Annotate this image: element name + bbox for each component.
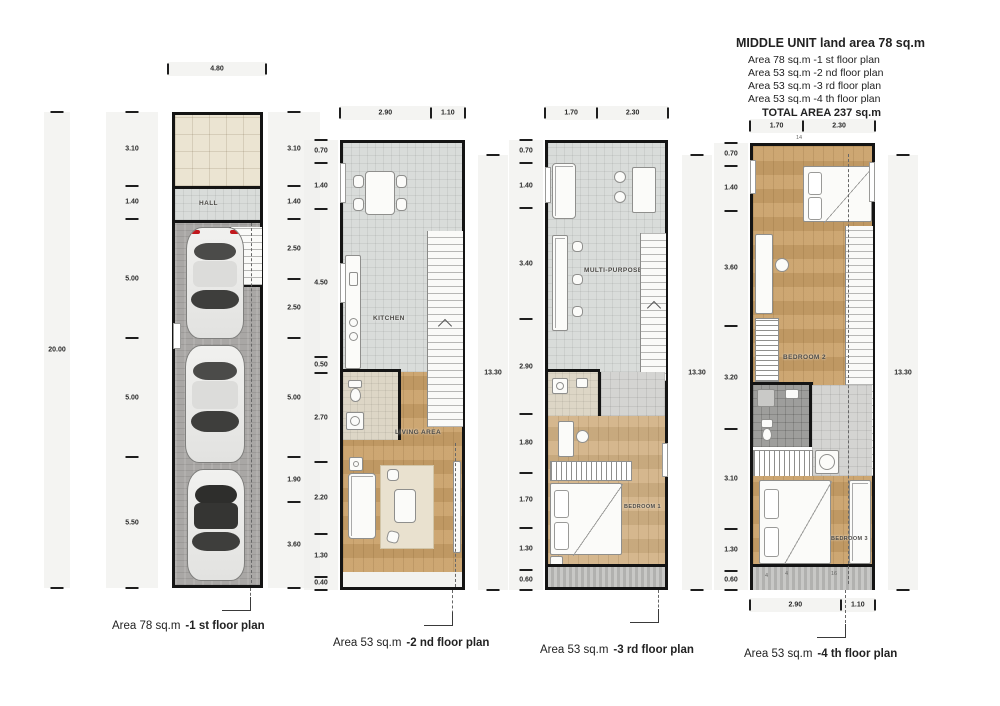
plan2-caption: Area 53 sq.m-2 nd floor plan [333,637,489,649]
rear-threshold [343,572,462,587]
dim-tick [596,108,598,119]
dim-tick [288,278,301,280]
bedroom3-label: BEDROOM 3 [831,536,868,542]
dim-tick [691,589,704,591]
desk-chair [614,191,626,203]
plan1-overall-dim: 20.00 [44,112,70,588]
dim-label: 13.30 [894,369,912,376]
dim-tick [520,162,533,164]
washer-drum [556,382,564,390]
balcony [548,567,665,587]
dim-label: 2.90 [519,363,533,370]
washing-machine [346,412,364,430]
stair-direction-icon [438,319,452,333]
pillow [554,522,569,550]
bedroom1-label: BEDROOM 1 [624,504,661,510]
plan4-caption-label: -4 th floor plan [817,648,897,660]
dim-tick [315,461,328,463]
dim-tick [315,208,328,210]
plan4-caption: Area 53 sq.m-4 th floor plan [744,648,897,660]
header-line-4: Area 53 sq.m -4 th floor plan [748,93,881,105]
front-terrace [175,115,260,186]
pillow [554,490,569,518]
plan4-bottom-dim-bar: 2.901.10 [750,598,875,612]
dim-label: 0.70 [519,148,533,155]
header-line-3: Area 53 sq.m -3 rd floor plan [748,80,881,92]
lamp-icon [353,461,359,467]
plan2-caption-label: -2 nd floor plan [406,637,489,649]
plan1-top-dim-bar: 4.80 [168,62,266,76]
dim-label: 2.30 [832,123,846,130]
dim-tick [315,576,328,578]
dim-tick [126,587,139,589]
sofa-cushions [555,166,573,216]
plan1-caption-label: -1 st floor plan [185,620,264,632]
dim-tick [725,210,738,212]
dim-tick [430,108,432,119]
desk-chair [775,258,789,272]
dim-tick [288,587,301,589]
car-windshield [192,532,239,552]
pillow [808,197,822,220]
window [750,160,756,194]
dim-tick [126,185,139,187]
dining-chair [353,175,364,188]
dim-tick [464,108,466,119]
floor-plan-1: HALL [172,112,263,588]
bathroom [343,372,398,440]
pillow [808,172,822,195]
stool [572,274,583,285]
toilet [762,428,772,441]
dim-label: 1.90 [287,476,301,483]
dining-chair [396,175,407,188]
counter-bar [552,235,568,331]
dim-label: 2.30 [626,110,640,117]
dim-label: 1.40 [724,185,738,192]
dim-label: 13.30 [688,369,706,376]
dim-label: 1.10 [851,602,865,609]
sink [785,389,799,399]
plan4-top-dim-bar: 1.702.30 [750,119,875,133]
hall-area: HALL [175,189,260,220]
dim-label: 1.70 [564,110,578,117]
plan1-caption-area: Area 78 sq.m [112,620,180,632]
dim-tick [725,428,738,430]
bookshelf [550,461,632,481]
plan4-left-dims: 0.701.403.603.203.101.300.60 [714,143,748,590]
car-roof [192,381,238,409]
dim-tick [725,528,738,530]
dim-label: 3.60 [724,265,738,272]
floor-plan-4: BEDROOM 2 BEDROOM 3 4 4 [750,143,875,590]
dim-tick [544,108,546,119]
balcony-tag: 4 [785,571,788,577]
dim-tick [315,589,328,591]
coffee-table [394,489,416,523]
dim-tick [520,413,533,415]
dim-label: 1.30 [314,552,328,559]
window [545,167,551,203]
bathroom-dark [753,385,809,447]
dim-tick [874,121,876,132]
cooktop-burner [349,332,358,341]
pillow [764,489,779,519]
dim-label: 1.10 [441,110,455,117]
daybed-sofa [552,163,576,219]
dim-tick [520,207,533,209]
dim-tick [520,569,533,571]
plan3-section-hook [630,609,659,623]
dim-label: 4.80 [210,66,224,73]
dim-label: 3.10 [287,145,301,152]
plan3-caption-area: Area 53 sq.m [540,644,608,656]
plan2-left-dims: 0.701.404.500.502.702.201.300.40 [304,140,338,590]
wardrobe [755,318,779,382]
dim-tick [288,456,301,458]
dim-label: 2.70 [314,414,328,421]
plan4-section-hook [817,624,846,638]
side-gate [173,323,181,349]
dim-tick [288,185,301,187]
dim-tick [520,139,533,141]
hall-label: HALL [199,200,218,207]
plan2-right-overall: 13.30 [478,155,508,590]
blanket-fold [573,484,623,556]
dim-tick [749,600,751,611]
car-windshield [191,290,238,310]
dim-tick [487,589,500,591]
dim-label: 1.40 [125,199,139,206]
dim-label: 0.40 [314,580,328,587]
cabinet-shelves [852,483,868,561]
dim-tick [749,121,751,132]
plan1-caption: Area 78 sq.m-1 st floor plan [112,620,265,632]
dim-label: 4.50 [314,279,328,286]
shower [757,389,775,407]
bedroom1-area: BEDROOM 1 [548,416,665,567]
dim-tick [487,154,500,156]
dim-label: 3.60 [287,542,301,549]
dim-label: 1.70 [770,123,784,130]
side-table [349,457,363,471]
staircase [427,231,463,427]
dim-label: 20.00 [48,347,66,354]
dim-tick [339,108,341,119]
dim-tick [315,139,328,141]
toilet-tank [348,380,362,388]
dim-label: 0.60 [724,577,738,584]
dim-tick [126,111,139,113]
dim-label: 1.80 [519,440,533,447]
dim-label: 1.40 [519,182,533,189]
plan4-caption-area: Area 53 sq.m [744,648,812,660]
dim-label: 13.30 [484,369,502,376]
dim-label: 5.00 [125,394,139,401]
plan3-caption-label: -3 rd floor plan [613,644,694,656]
car-3 [187,469,245,581]
balcony-tag: 16 [831,571,837,577]
dim-tick [725,325,738,327]
dim-tick [725,142,738,144]
dim-label: 1.30 [519,546,533,553]
dim-label: 2.50 [287,245,301,252]
sink [576,378,588,388]
washer-drum [350,416,360,426]
dim-tick [897,589,910,591]
side-table [815,450,839,474]
dim-tick [520,527,533,529]
dim-label: 2.50 [287,305,301,312]
balcony: 4 4 16 [753,567,872,590]
stool [572,241,583,252]
dim-tick [315,162,328,164]
header-line-2: Area 53 sq.m -2 nd floor plan [748,67,883,79]
dim-tick [51,587,64,589]
sofa [348,473,376,539]
dim-label: 3.20 [724,374,738,381]
header-total: TOTAL AREA 237 sq.m [762,107,881,119]
plan2-centerline [455,443,456,587]
window [662,443,668,477]
kitchen-sink [349,272,358,286]
kitchen-counter [345,255,361,369]
bedroom2-label: BEDROOM 2 [783,354,826,361]
dim-tick [725,570,738,572]
dim-tick [897,154,910,156]
dim-tick [667,108,669,119]
dim-tick [691,154,704,156]
lot-centerline [251,223,252,583]
dim-label: 1.40 [314,182,328,189]
dim-tick [725,589,738,591]
dim-label: 2.90 [789,602,803,609]
cooktop-burner [349,318,358,327]
dim-label: 1.40 [287,199,301,206]
lamp-icon [819,454,835,470]
dim-label: 0.50 [314,362,328,369]
dim-tick [288,337,301,339]
wardrobe-2 [753,450,813,478]
plan1-section-hook [222,597,251,611]
multi-purpose-label: MULTI-PURPOSE [584,267,643,274]
plan3-left-dims: 0.701.403.402.901.801.701.300.60 [509,140,543,590]
dim-tick [874,600,876,611]
bed-3 [759,480,831,564]
dim-label: 0.60 [519,577,533,584]
dim-tick [126,456,139,458]
dim-tick [265,64,267,75]
tail-light-icon [191,230,200,234]
plan3-right-overall: 13.30 [682,155,712,590]
stair-landing [601,372,665,416]
car-windshield [191,411,240,432]
dim-label: 0.70 [724,151,738,158]
plan2-section-hook [424,612,453,626]
bathroom [548,372,598,416]
tail-light-icon [230,230,239,234]
dim-label: 0.70 [314,148,328,155]
dim-label: 2.20 [314,495,328,502]
dim-tick [315,372,328,374]
dim-label: 2.90 [379,110,393,117]
dim-label: 3.40 [519,260,533,267]
window [340,163,346,203]
balcony-tag: 4 [765,573,768,579]
plan4-top-tag: 14 [796,135,802,141]
car-2 [185,345,245,463]
dim-tick [51,111,64,113]
pillow [764,527,779,557]
stool [572,306,583,317]
dim-label: 3.10 [125,145,139,152]
chair [576,430,589,443]
plan2-top-dim-bar: 2.901.10 [340,106,465,120]
dim-tick [802,121,804,132]
dining-table [365,171,395,215]
plan1-left-dims: 3.101.405.005.005.50 [106,112,158,588]
dim-tick [288,111,301,113]
plan3-caption: Area 53 sq.m-3 rd floor plan [540,644,694,656]
desk-chair [614,171,626,183]
dining-chair [396,198,407,211]
carport-area [175,223,260,585]
kitchen-label: KITCHEN [373,315,405,322]
staircase [640,233,666,381]
dim-tick [315,533,328,535]
toilet-tank [761,419,773,428]
car-roof [194,503,239,529]
dim-tick [520,472,533,474]
counter-shelves [555,238,565,328]
blanket-fold [784,481,832,565]
dim-tick [288,218,301,220]
tall-cabinet [849,480,871,564]
car-rear-glass [194,243,237,260]
dim-tick [126,218,139,220]
dim-tick [520,589,533,591]
dining-chair [353,198,364,211]
toilet [350,388,361,402]
stair-direction-icon [647,301,661,315]
dim-label: 1.30 [724,546,738,553]
dim-label: 3.10 [724,476,738,483]
sheet-title: MIDDLE UNIT land area 78 sq.m [736,36,925,50]
plan2-caption-area: Area 53 sq.m [333,637,401,649]
plan3-top-dim-bar: 1.702.30 [545,106,668,120]
pouf [387,469,399,481]
header-line-1: Area 78 sq.m -1 st floor plan [748,54,880,66]
car-rear-glass [193,362,237,379]
plan4-right-overall: 13.30 [888,155,918,590]
dresser [558,421,574,457]
sofa-cushions [351,476,373,536]
dim-tick [520,318,533,320]
floorplan-sheet: MIDDLE UNIT land area 78 sq.m Area 78 sq… [0,0,1000,706]
dim-tick [126,337,139,339]
desk [755,234,773,314]
car-1 [186,227,244,339]
dim-tick [725,165,738,167]
bed-2 [803,166,872,222]
dim-label: 5.50 [125,519,139,526]
dim-tick [288,501,301,503]
washing-machine [552,378,568,394]
dim-label: 5.00 [287,394,301,401]
work-desk [632,167,656,213]
floor-plan-2: KITCHEN LIVING AREA [340,140,465,590]
floor-plan-3: MULTI-PURPOSE BEDROOM 1 [545,140,668,590]
bed-1 [550,483,622,555]
window [340,263,346,303]
dim-tick [840,600,842,611]
plan4-centerline [848,154,849,584]
dim-tick [315,356,328,358]
car-roof [193,261,238,287]
living-label: LIVING AREA [395,429,441,436]
window [869,162,875,202]
dim-tick [167,64,169,75]
dim-label: 1.70 [519,497,533,504]
dim-label: 5.00 [125,275,139,282]
bedroom3-area: BEDROOM 3 [753,476,872,566]
